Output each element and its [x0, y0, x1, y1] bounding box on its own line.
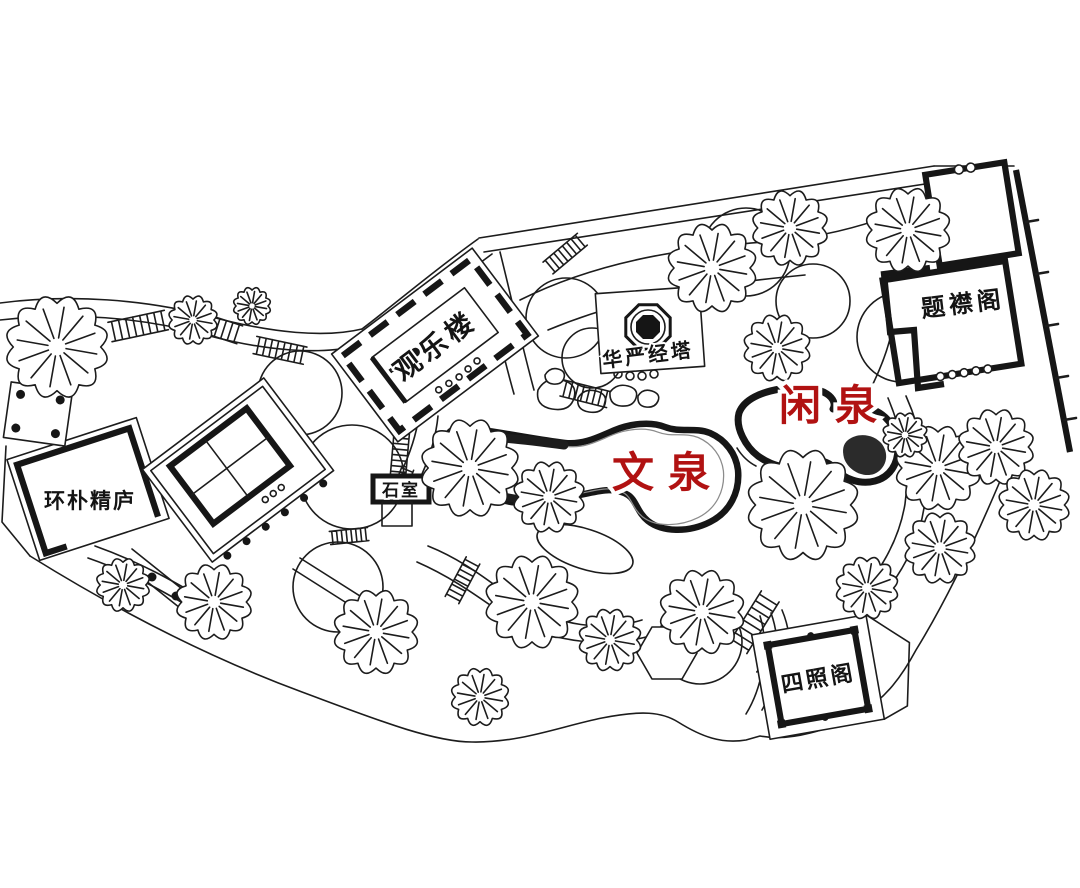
tree-icon	[753, 191, 827, 265]
hall-building	[142, 378, 338, 569]
sizhaoge-building: 四照阁	[752, 608, 922, 739]
tree-icon	[999, 470, 1069, 540]
guanlelou-building: 观乐楼	[332, 248, 539, 442]
tree-icon	[837, 558, 898, 619]
tree-icon	[177, 565, 251, 639]
garden-plan-canvas: 观乐楼 题襟阁	[0, 0, 1080, 888]
tree-canopy-circle	[526, 278, 606, 358]
label-huanpujinglu: 环朴精庐	[44, 489, 136, 513]
perimeter-wall	[1016, 170, 1070, 452]
tree-icon	[7, 297, 107, 397]
tree-icon	[668, 224, 755, 311]
stairs	[445, 557, 480, 604]
tree-icon	[744, 315, 809, 380]
tree-icon	[452, 669, 509, 726]
tree-icon	[97, 559, 149, 611]
label-xianquan: 闲泉	[779, 381, 891, 430]
tree-icon	[234, 288, 271, 325]
shishi-building: 石室	[373, 476, 429, 526]
label-shishi: 石室	[381, 480, 420, 501]
tree-icon	[749, 451, 858, 560]
tree-icon	[169, 296, 217, 344]
stairs	[108, 310, 168, 341]
tree-icon	[486, 556, 577, 647]
tree-icon	[580, 610, 641, 671]
site-plan-svg: 观乐楼 题襟阁	[0, 0, 1080, 888]
tree-icon	[905, 513, 975, 583]
tree-icon	[422, 420, 518, 516]
tree-icon	[335, 591, 418, 674]
tree-icon	[514, 462, 584, 532]
tree-icon	[661, 571, 744, 654]
tree-icon	[867, 189, 950, 272]
label-wenquan: 文泉	[612, 448, 724, 497]
